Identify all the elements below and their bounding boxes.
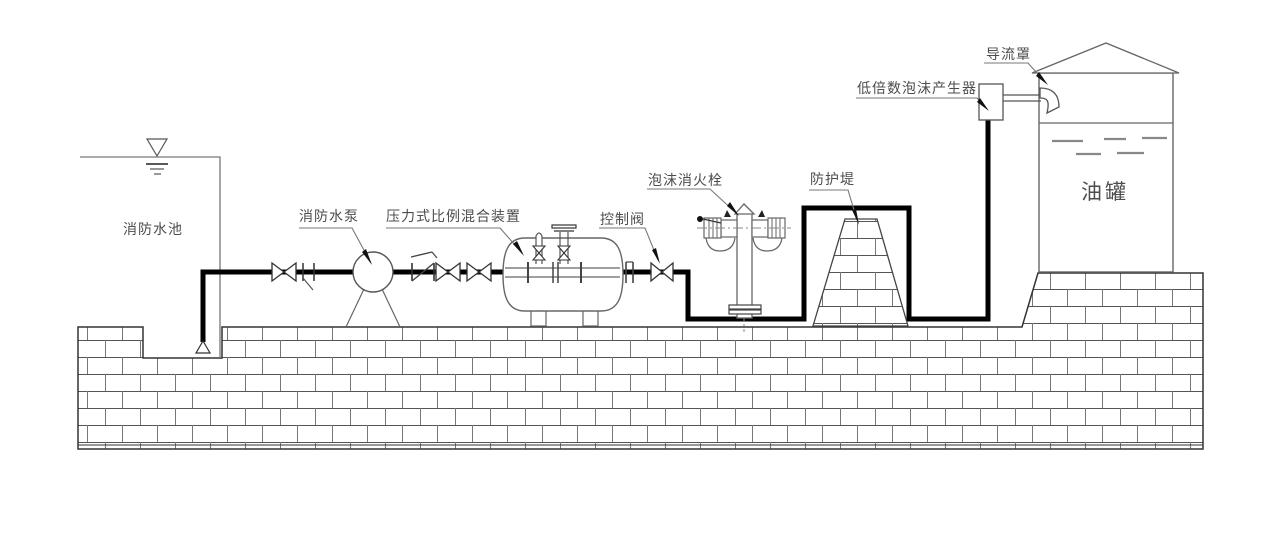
hydrant-base-flange bbox=[729, 305, 761, 314]
hydrant-outlet-left bbox=[704, 210, 737, 251]
fire-water-pool: 消防水池 bbox=[80, 139, 220, 358]
label-proportioner: 压力式比例混合装置 bbox=[386, 208, 521, 224]
check-valve-icon bbox=[411, 252, 437, 281]
callout-foam-hydrant: 泡沫消火栓 bbox=[647, 172, 739, 216]
label-dike: 防护堤 bbox=[810, 171, 855, 187]
pump-leg bbox=[346, 289, 364, 327]
protective-dike bbox=[813, 219, 908, 326]
label-control-valve: 控制阀 bbox=[600, 211, 645, 227]
pump-leg bbox=[382, 289, 400, 327]
hydrant-riser bbox=[737, 213, 752, 318]
tank-inlet-gate-valve-icon bbox=[467, 263, 491, 281]
label-foam-generator: 低倍数泡沫产生器 bbox=[857, 80, 977, 96]
schematic-canvas: 消防水池 bbox=[0, 0, 1269, 535]
label-foam-hydrant: 泡沫消火栓 bbox=[648, 172, 723, 188]
ground-bricks bbox=[78, 273, 1203, 449]
oil-tank: 油罐 bbox=[1032, 43, 1179, 272]
callout-foam-generator: 低倍数泡沫产生器 bbox=[856, 80, 989, 111]
foot-valve-icon bbox=[196, 341, 210, 353]
label-oil-tank: 油罐 bbox=[1081, 181, 1129, 204]
suction-gate-valve-icon bbox=[272, 263, 296, 281]
flex-joint-icon bbox=[303, 263, 314, 290]
hydrant-handle-knob bbox=[697, 216, 703, 222]
leader-arrow bbox=[652, 248, 660, 264]
hydrant-dome bbox=[735, 204, 754, 214]
label-deflector: 导流罩 bbox=[986, 46, 1031, 62]
pressure-proportioner-tank bbox=[503, 225, 633, 326]
callout-dike: 防护堤 bbox=[809, 171, 859, 225]
foam-system-diagram: 消防水池 bbox=[0, 0, 1269, 535]
hydrant-outlet-right bbox=[752, 210, 785, 251]
ground-surface bbox=[78, 273, 1203, 449]
oil-tank-roof bbox=[1032, 43, 1179, 73]
discharge-gate-valve-icon bbox=[436, 263, 460, 281]
control-valve-icon bbox=[651, 263, 673, 281]
pump-body-icon bbox=[353, 252, 393, 292]
fire-pump bbox=[346, 252, 400, 327]
label-fire-pump: 消防水泵 bbox=[299, 208, 359, 224]
callout-proportioner: 压力式比例混合装置 bbox=[386, 208, 524, 256]
foam-hydrant bbox=[697, 203, 791, 332]
label-fire-pool: 消防水池 bbox=[123, 221, 183, 237]
